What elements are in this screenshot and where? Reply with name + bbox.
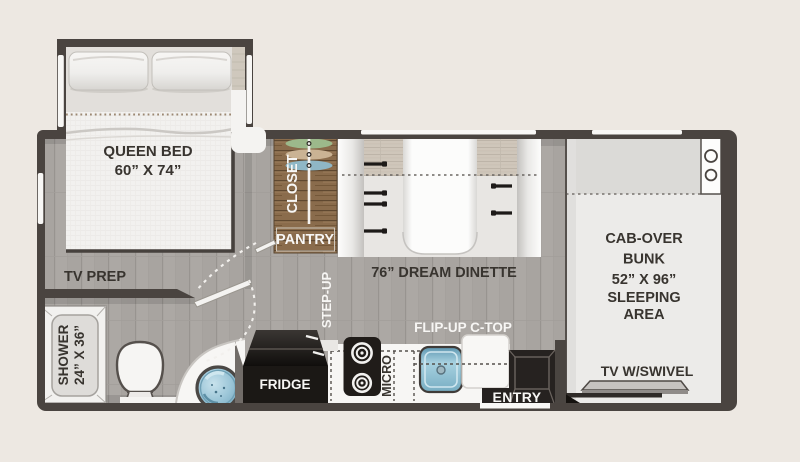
svg-text:TV PREP: TV PREP [64,269,126,285]
svg-text:ENTRY: ENTRY [493,389,542,405]
svg-text:FRIDGE: FRIDGE [259,377,310,392]
svg-text:TV W/SWIVEL: TV W/SWIVEL [601,363,694,379]
svg-text:CAB-OVER: CAB-OVER [605,231,683,247]
svg-text:AREA: AREA [623,307,665,323]
svg-text:QUEEN BED: QUEEN BED [103,143,192,160]
svg-text:BUNK: BUNK [623,252,665,268]
svg-text:PANTRY: PANTRY [276,232,334,248]
svg-text:CLOSET: CLOSET [285,154,301,213]
svg-text:24” X 36”: 24” X 36” [72,325,87,385]
svg-text:FLIP-UP C-TOP: FLIP-UP C-TOP [414,320,512,335]
svg-text:52” X 96”: 52” X 96” [612,272,677,288]
svg-text:SLEEPING: SLEEPING [607,290,680,306]
svg-text:SHOWER: SHOWER [56,324,71,385]
svg-text:MICRO: MICRO [380,355,394,397]
svg-text:STEP-UP: STEP-UP [319,272,334,329]
svg-text:76” DREAM DINETTE: 76” DREAM DINETTE [371,265,517,281]
svg-text:60” X 74”: 60” X 74” [115,162,182,179]
